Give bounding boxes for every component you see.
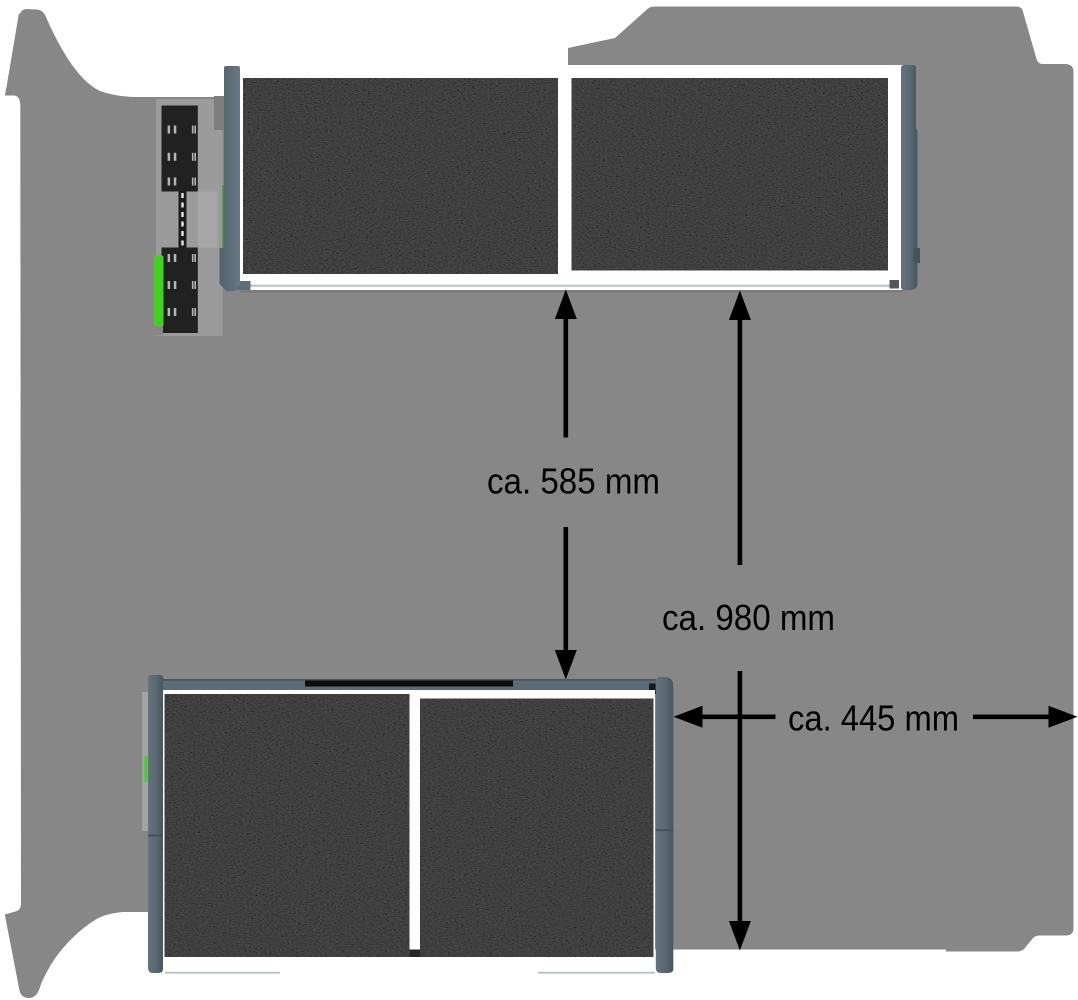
svg-text:ca. 980 mm: ca. 980 mm [662,597,835,638]
svg-text:ca. 445 mm: ca. 445 mm [788,698,959,739]
svg-text:ca. 585 mm: ca. 585 mm [487,461,660,502]
